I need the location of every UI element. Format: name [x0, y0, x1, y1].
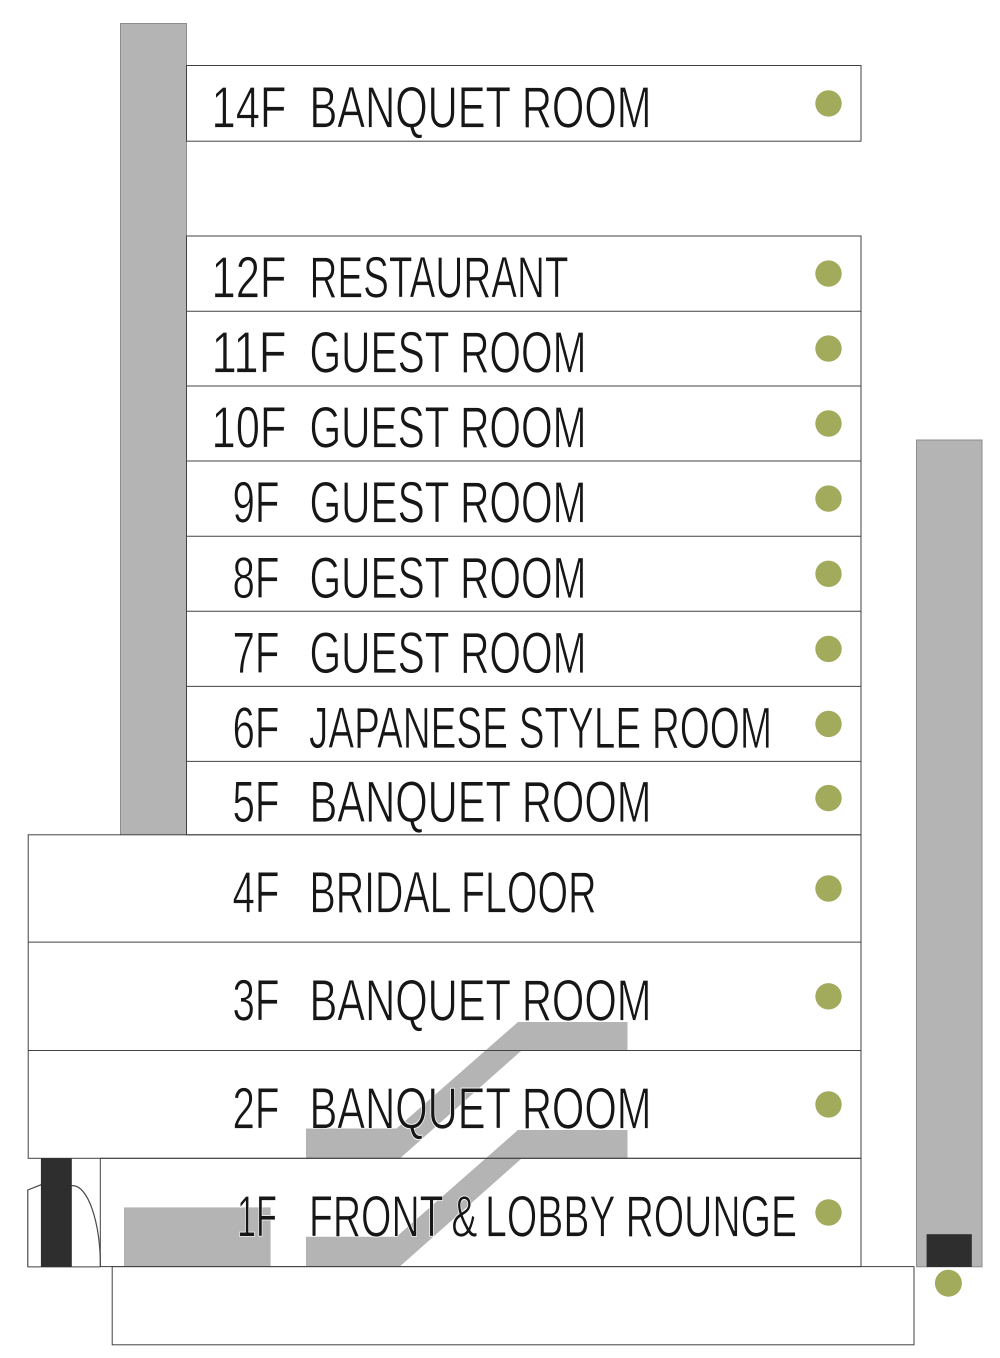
svg-text:BANQUET ROOM: BANQUET ROOM [310, 968, 652, 1033]
svg-text:GUEST ROOM: GUEST ROOM [310, 621, 587, 686]
svg-text:12F: 12F [212, 246, 287, 311]
svg-text:GUEST ROOM: GUEST ROOM [310, 546, 587, 611]
svg-text:RESTAURANT: RESTAURANT [310, 246, 569, 311]
svg-text:10F: 10F [212, 396, 287, 461]
svg-text:7F: 7F [233, 621, 280, 686]
svg-text:9F: 9F [233, 471, 280, 536]
svg-text:5F: 5F [233, 770, 280, 835]
svg-text:GUEST ROOM: GUEST ROOM [310, 396, 587, 461]
svg-text:GUEST ROOM: GUEST ROOM [310, 471, 587, 536]
svg-text:BANQUET ROOM: BANQUET ROOM [310, 770, 652, 835]
svg-text:8F: 8F [233, 546, 280, 611]
svg-text:2F: 2F [233, 1076, 280, 1141]
svg-text:GUEST ROOM: GUEST ROOM [310, 321, 587, 386]
svg-text:6F: 6F [233, 696, 280, 761]
svg-text:3F: 3F [233, 968, 280, 1033]
svg-text:BRIDAL FLOOR: BRIDAL FLOOR [310, 861, 597, 926]
svg-text:11F: 11F [212, 321, 287, 386]
svg-text:FRONT & LOBBY ROUNGE: FRONT & LOBBY ROUNGE [309, 1185, 797, 1250]
svg-text:4F: 4F [233, 861, 280, 926]
svg-text:BANQUET ROOM: BANQUET ROOM [310, 1076, 652, 1141]
svg-text:BANQUET ROOM: BANQUET ROOM [310, 75, 652, 140]
svg-text:14F: 14F [212, 75, 287, 140]
svg-text:1F: 1F [237, 1185, 277, 1250]
svg-text:JAPANESE STYLE ROOM: JAPANESE STYLE ROOM [309, 696, 772, 761]
